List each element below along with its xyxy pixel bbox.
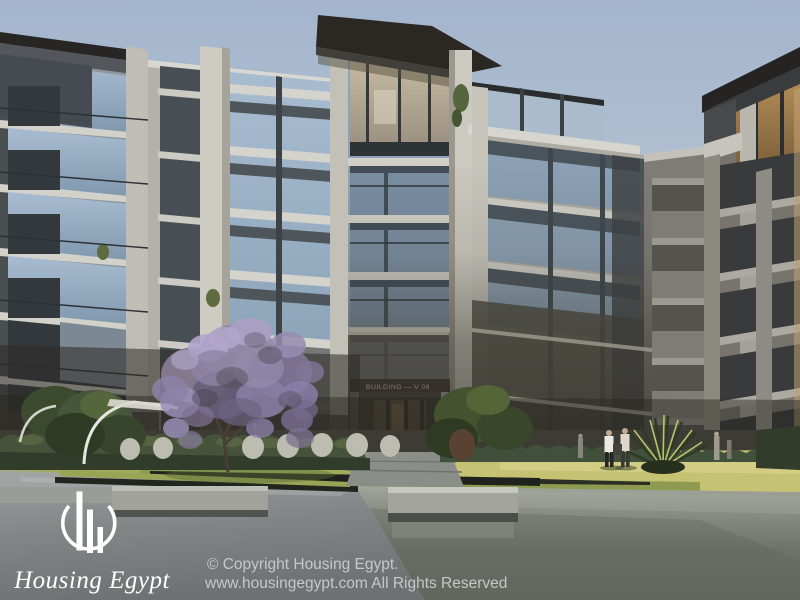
svg-text:© Copyright Housing Egypt.: © Copyright Housing Egypt. [207, 556, 399, 573]
svg-text:www.housingegypt.com All Right: www.housingegypt.com All Rights Reserved [204, 575, 507, 592]
svg-text:Housing Egypt: Housing Egypt [13, 567, 170, 594]
